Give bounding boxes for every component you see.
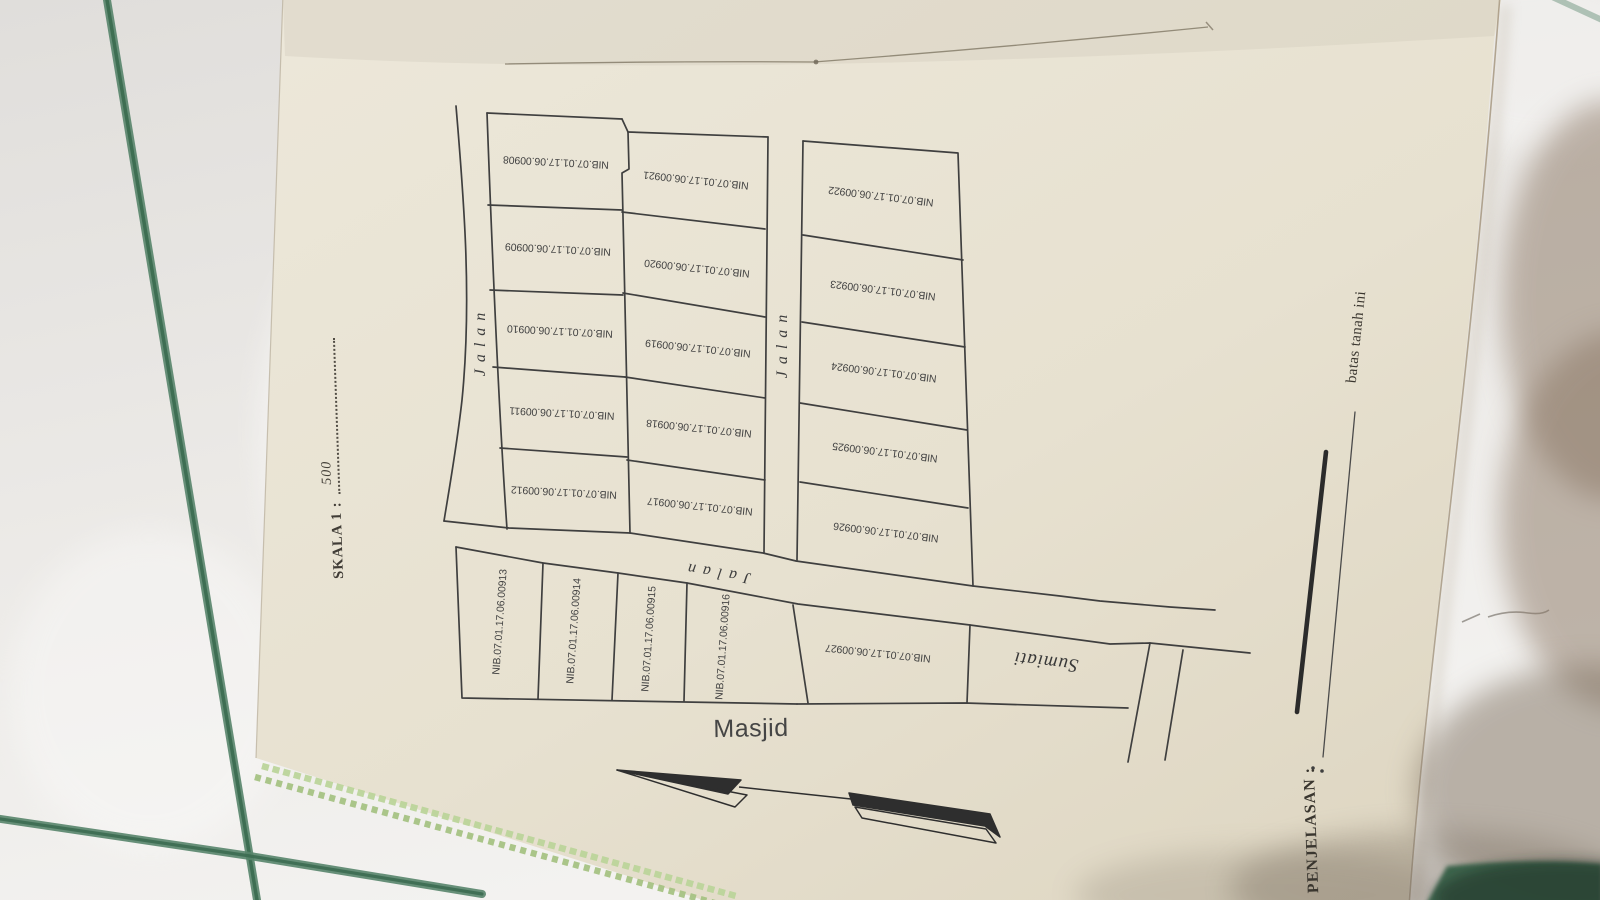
scene-graphics <box>0 0 1600 900</box>
photo-of-land-survey-document: NIB.07.01.17.06.00908 NIB.07.01.17.06.00… <box>0 0 1600 900</box>
grout-patch-corner <box>1425 860 1600 900</box>
paper-sheet <box>256 0 1502 900</box>
